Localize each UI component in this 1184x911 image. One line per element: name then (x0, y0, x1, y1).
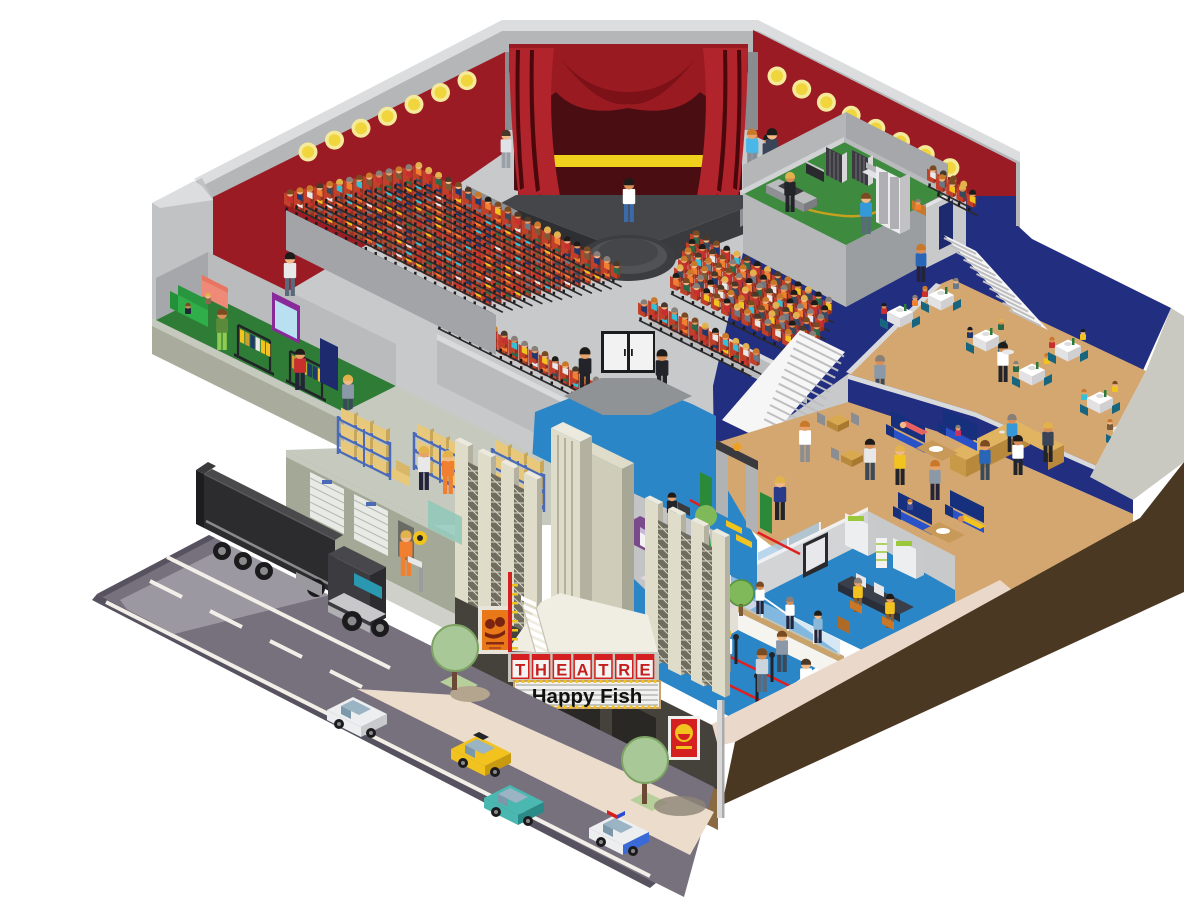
svg-text:R: R (618, 662, 630, 680)
svg-text:E: E (556, 662, 567, 680)
svg-text:A: A (577, 662, 589, 680)
svg-text:T: T (598, 662, 608, 680)
svg-text:E: E (639, 662, 650, 680)
svg-text:H: H (535, 662, 547, 680)
svg-text:T: T (515, 662, 525, 680)
